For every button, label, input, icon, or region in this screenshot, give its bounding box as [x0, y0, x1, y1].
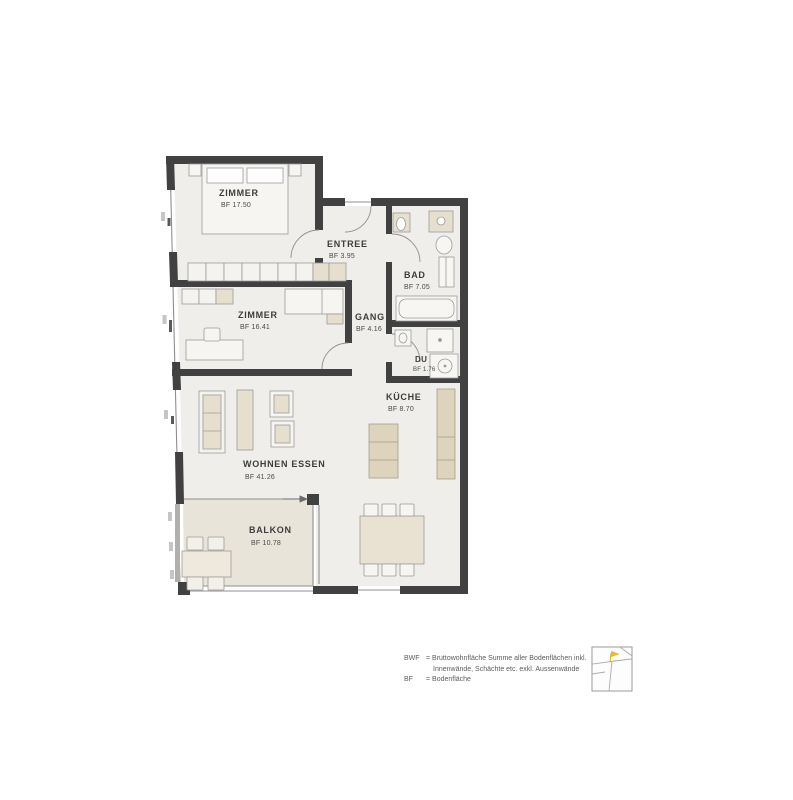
balcony-table	[182, 551, 231, 577]
mullion-1	[168, 218, 171, 226]
room-area-kueche: BF 8.70	[388, 406, 414, 413]
chair	[187, 577, 203, 590]
wall-left-1	[166, 156, 175, 190]
dining-furniture	[360, 504, 424, 576]
desk	[186, 340, 243, 360]
chair	[208, 537, 224, 550]
legend: BWF = Bruttowohnfläche Summe aller Boden…	[404, 654, 589, 686]
nightstand	[189, 164, 201, 176]
pillow	[247, 168, 283, 183]
legend-row-bwf: BWF = Bruttowohnfläche Summe aller Boden…	[404, 654, 589, 665]
room-label-bad: BAD	[404, 270, 426, 280]
wardrobe-row	[188, 263, 346, 281]
wall-top-left	[166, 156, 323, 164]
room-area-gang: BF 4.16	[356, 326, 382, 333]
legend-row-bf: BF = Bodenfläche	[404, 675, 589, 686]
wall-gang-bad-a	[386, 206, 392, 234]
chair	[187, 537, 203, 550]
bath-shelf	[439, 257, 454, 287]
room-label-kueche: KÜCHE	[386, 392, 422, 402]
room-area-bad: BF 7.05	[404, 284, 430, 291]
legend-term-bwf: BWF	[404, 654, 426, 665]
chair	[382, 504, 396, 516]
bed-step	[327, 314, 343, 324]
room-area-du: BF 1.76	[413, 367, 436, 373]
room-area-entree: BF 3.95	[329, 253, 355, 260]
floorplan-page: ZIMMER BF 17.50 ENTREE BF 3.95 BAD BF 7.…	[0, 0, 793, 800]
wall-h2	[172, 369, 352, 376]
sideboard	[237, 390, 253, 450]
legend-def-bf: = Bodenfläche	[426, 675, 589, 686]
kitchen-counter	[437, 389, 455, 479]
pillow	[207, 168, 243, 183]
room-area-wohnen-essen: BF 41.26	[245, 474, 275, 481]
wohnen-furniture	[199, 390, 294, 453]
chair	[400, 564, 414, 576]
wall-gang-bad-c	[386, 362, 392, 376]
chair	[382, 564, 396, 576]
desk-chair	[204, 328, 220, 341]
washbasin	[436, 236, 452, 254]
balcony-parapet	[175, 504, 180, 582]
legend-row-bwf-2: Innenwände, Schächte etc. exkl. Aussenwä…	[404, 665, 589, 676]
kitchen-island	[369, 424, 398, 478]
small-basin	[395, 330, 411, 346]
wall-top-right-a	[323, 198, 345, 206]
dining-table	[360, 516, 424, 564]
chair	[364, 564, 378, 576]
legend-def-bwf: = Bruttowohnfläche Summe aller Bodenfläc…	[426, 654, 589, 665]
wall-left-4	[175, 452, 184, 504]
room-label-wohnen-essen: WOHNEN ESSEN	[243, 459, 325, 469]
legend-def-bwf-2: Innenwände, Schächte etc. exkl. Aussenwä…	[426, 665, 589, 676]
wall-bottom-a	[313, 586, 358, 594]
wall-gang-zimmer2	[345, 287, 352, 343]
room-label-balkon: BALKON	[249, 525, 292, 535]
chair	[400, 504, 414, 516]
room-label-gang: GANG	[355, 312, 385, 322]
bathtub	[396, 296, 457, 321]
legend-term-bf: BF	[404, 675, 426, 686]
room-area-zimmer-2: BF 16.41	[240, 324, 270, 331]
wardrobe	[182, 289, 233, 304]
mullion-3	[171, 416, 174, 424]
room-area-balkon: BF 10.78	[251, 540, 281, 547]
wall-right	[460, 198, 468, 594]
wall-bottom-b	[400, 586, 460, 594]
room-label-zimmer-2: ZIMMER	[238, 310, 278, 320]
mullion-2	[169, 320, 172, 332]
balcony-corner-post	[307, 494, 319, 505]
site-plan-icon	[591, 646, 633, 692]
wall-gang-bad-b	[386, 262, 392, 334]
bed-single	[285, 289, 343, 314]
room-label-du: DU	[415, 355, 427, 364]
nightstand	[289, 164, 301, 176]
wall-left-2	[169, 252, 178, 284]
floorplan-drawing: ZIMMER BF 17.50 ENTREE BF 3.95 BAD BF 7.…	[0, 0, 793, 800]
chair	[364, 504, 378, 516]
room-area-zimmer-1: BF 17.50	[221, 202, 251, 209]
chair	[208, 577, 224, 590]
room-label-zimmer-1: ZIMMER	[219, 188, 259, 198]
wall-zimmer1-entree-a	[315, 206, 323, 230]
wall-top-right-b	[371, 198, 468, 206]
room-label-entree: ENTREE	[327, 239, 368, 249]
wall-step	[315, 156, 323, 206]
